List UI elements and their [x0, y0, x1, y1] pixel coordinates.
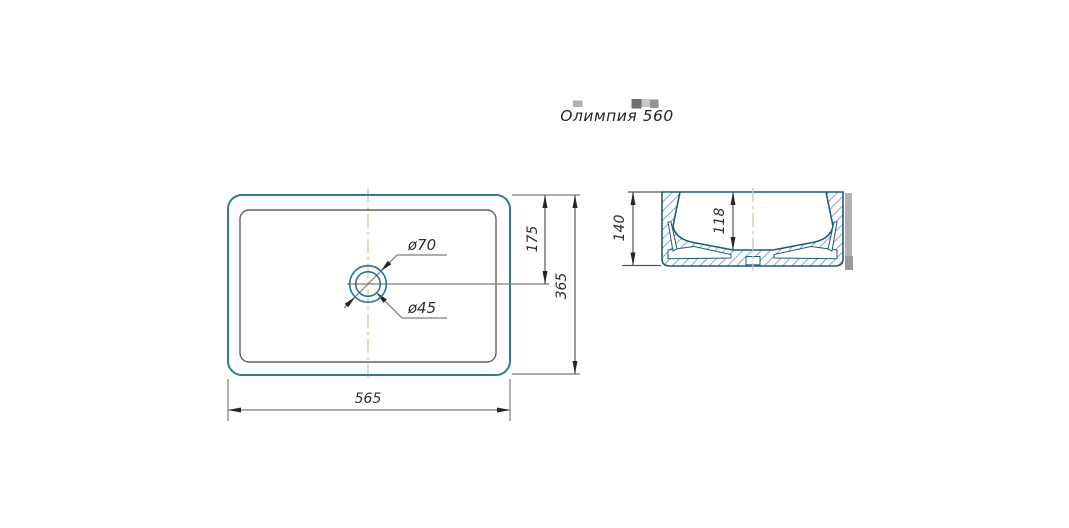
side-view-section: 140 118	[612, 188, 853, 271]
dim-140-arrow-top	[631, 192, 636, 205]
dim-label-drain-inner: ø45	[407, 299, 436, 317]
drawing-title: Олимпия 560	[560, 107, 673, 125]
dim-565: 565	[228, 379, 510, 421]
dim-label-inner-depth: 118	[712, 208, 728, 235]
dim-565-arrow-left	[228, 408, 241, 413]
dim-118-arrow-top	[731, 192, 736, 205]
basin-outer-outline	[228, 195, 510, 375]
screenshot-shadow-artifact-bottom	[845, 256, 853, 270]
dim-label-width: 565	[355, 391, 382, 407]
top-view-plan: ø70 ø45	[228, 189, 549, 382]
dim-140-arrow-bottom	[631, 253, 636, 266]
dim-565-arrow-right	[497, 408, 510, 413]
dim-label-section-height: 140	[612, 215, 628, 242]
drawing-page: Олимпия 560 ø70 ø45 565	[0, 0, 1069, 528]
dim-label-drain-offset: 175	[525, 226, 541, 253]
dim-118-arrow-bottom	[731, 237, 736, 250]
screenshot-shadow-artifact	[845, 193, 852, 259]
dim-365-arrow-top	[573, 195, 578, 208]
dim-175-arrow-bottom	[543, 271, 548, 284]
dim-140: 140	[612, 192, 661, 266]
dim-118: 118	[712, 192, 736, 250]
technical-drawing-svg: Олимпия 560 ø70 ø45 565	[0, 0, 1069, 528]
dim-label-height: 365	[554, 273, 570, 300]
dim-365-arrow-bottom	[573, 361, 578, 374]
dim-175-arrow-top	[543, 195, 548, 208]
artifact-square-3	[642, 99, 651, 107]
dim-label-drain-outer: ø70	[407, 236, 436, 254]
